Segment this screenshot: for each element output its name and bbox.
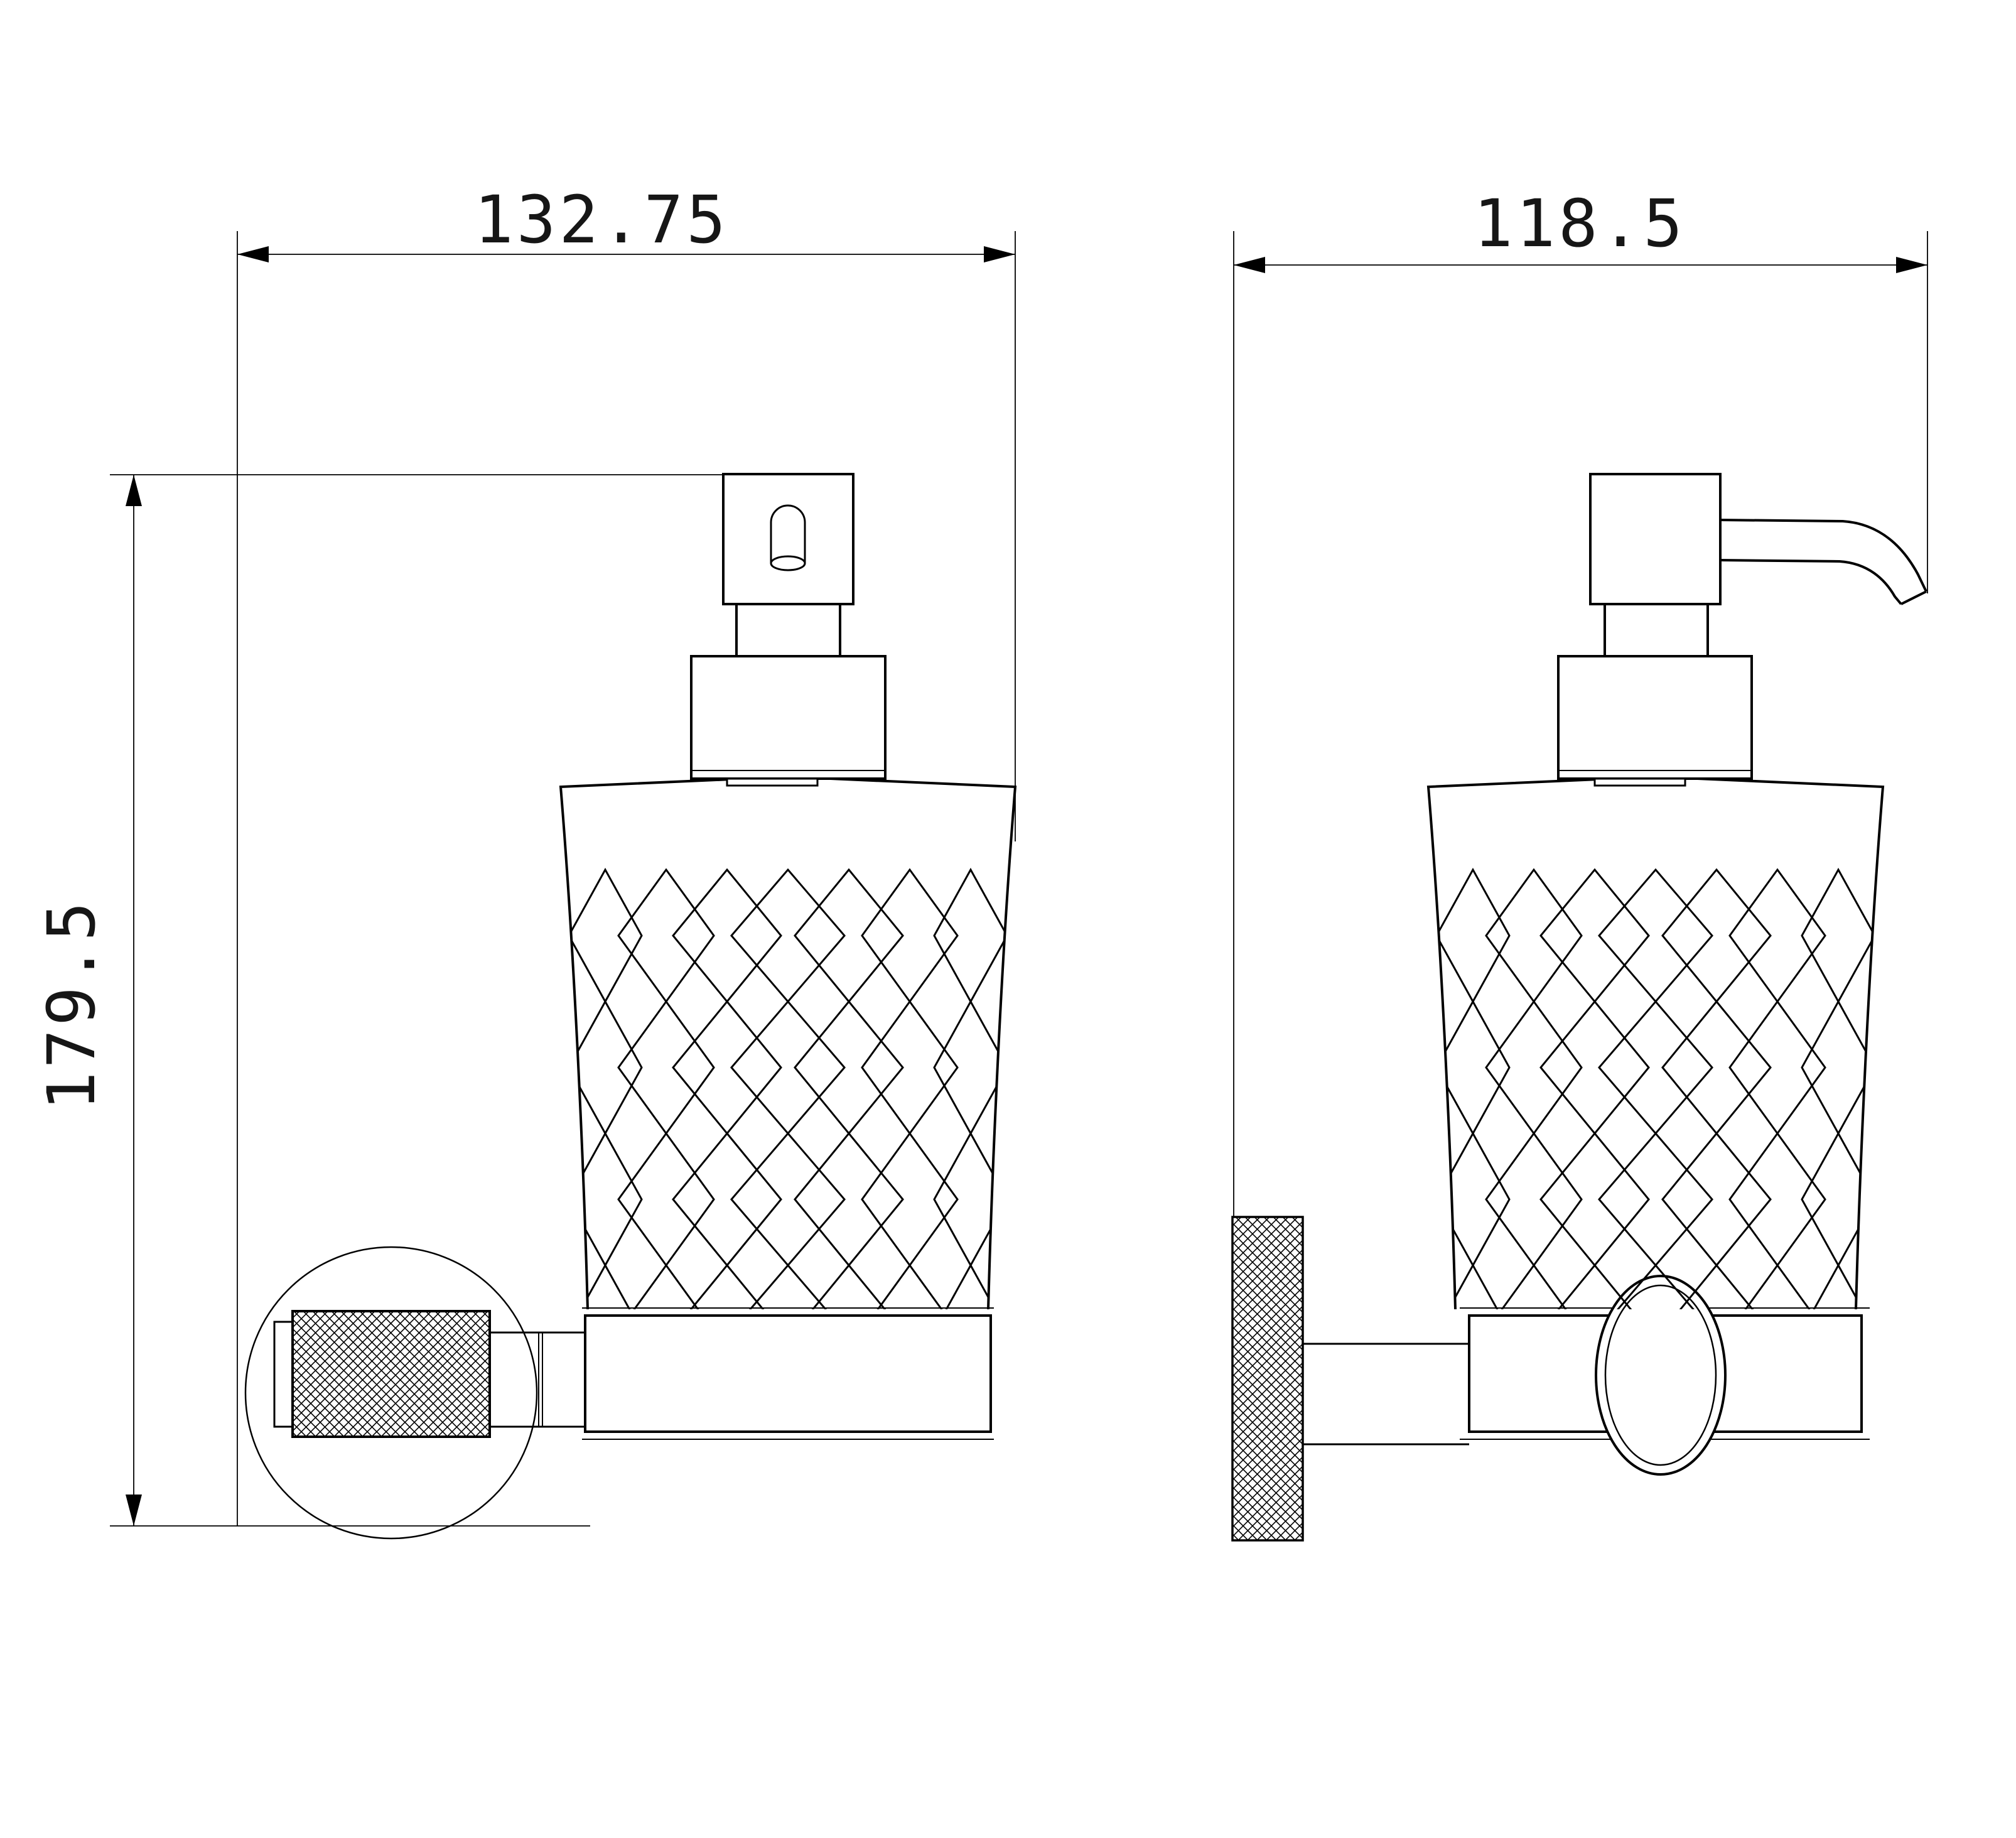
holder-body xyxy=(585,1316,991,1432)
pump-neck xyxy=(736,604,840,656)
knurled-knob xyxy=(274,1311,490,1437)
dimension-text-height: 179.5 xyxy=(33,899,110,1111)
dimension-text-front-width: 132.75 xyxy=(474,181,729,258)
pump-mount-ring xyxy=(1595,779,1685,786)
pump-collar xyxy=(691,656,885,779)
sheet-background xyxy=(0,0,2016,1838)
pump-head xyxy=(1590,474,1720,604)
wall-plate-knurled xyxy=(1232,1217,1303,1540)
pump-head xyxy=(723,474,853,604)
dimension-text-side-width: 118.5 xyxy=(1474,185,1686,262)
drawing-sheet: 132.75 179.5 xyxy=(0,0,2016,1838)
pump-mount-ring xyxy=(727,779,817,786)
technical-drawing-canvas: 132.75 179.5 xyxy=(0,0,2016,1838)
pivot-screw-outer xyxy=(1596,1276,1725,1474)
pump-neck xyxy=(1605,604,1708,656)
pump-nozzle-opening xyxy=(771,556,805,570)
knob-knurled-surface xyxy=(293,1311,490,1437)
knob-end-cap xyxy=(274,1322,293,1427)
pump-collar xyxy=(1558,656,1752,779)
holder-front xyxy=(582,1308,994,1439)
